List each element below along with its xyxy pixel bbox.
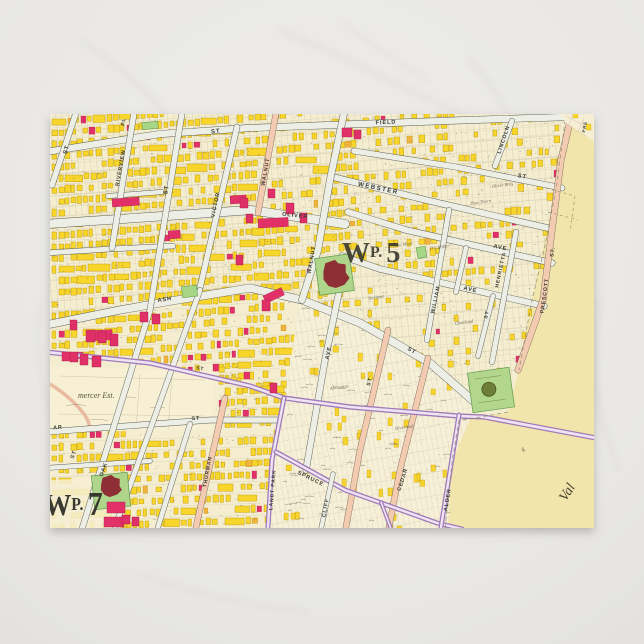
svg-text:AR: AR [53,425,63,432]
svg-text:ST: ST [196,365,205,372]
svg-text:mercer Est.: mercer Est. [78,391,115,400]
svg-text:FIELD: FIELD [376,120,397,127]
svg-text:ST: ST [191,416,200,423]
svg-text:ST: ST [211,129,221,136]
